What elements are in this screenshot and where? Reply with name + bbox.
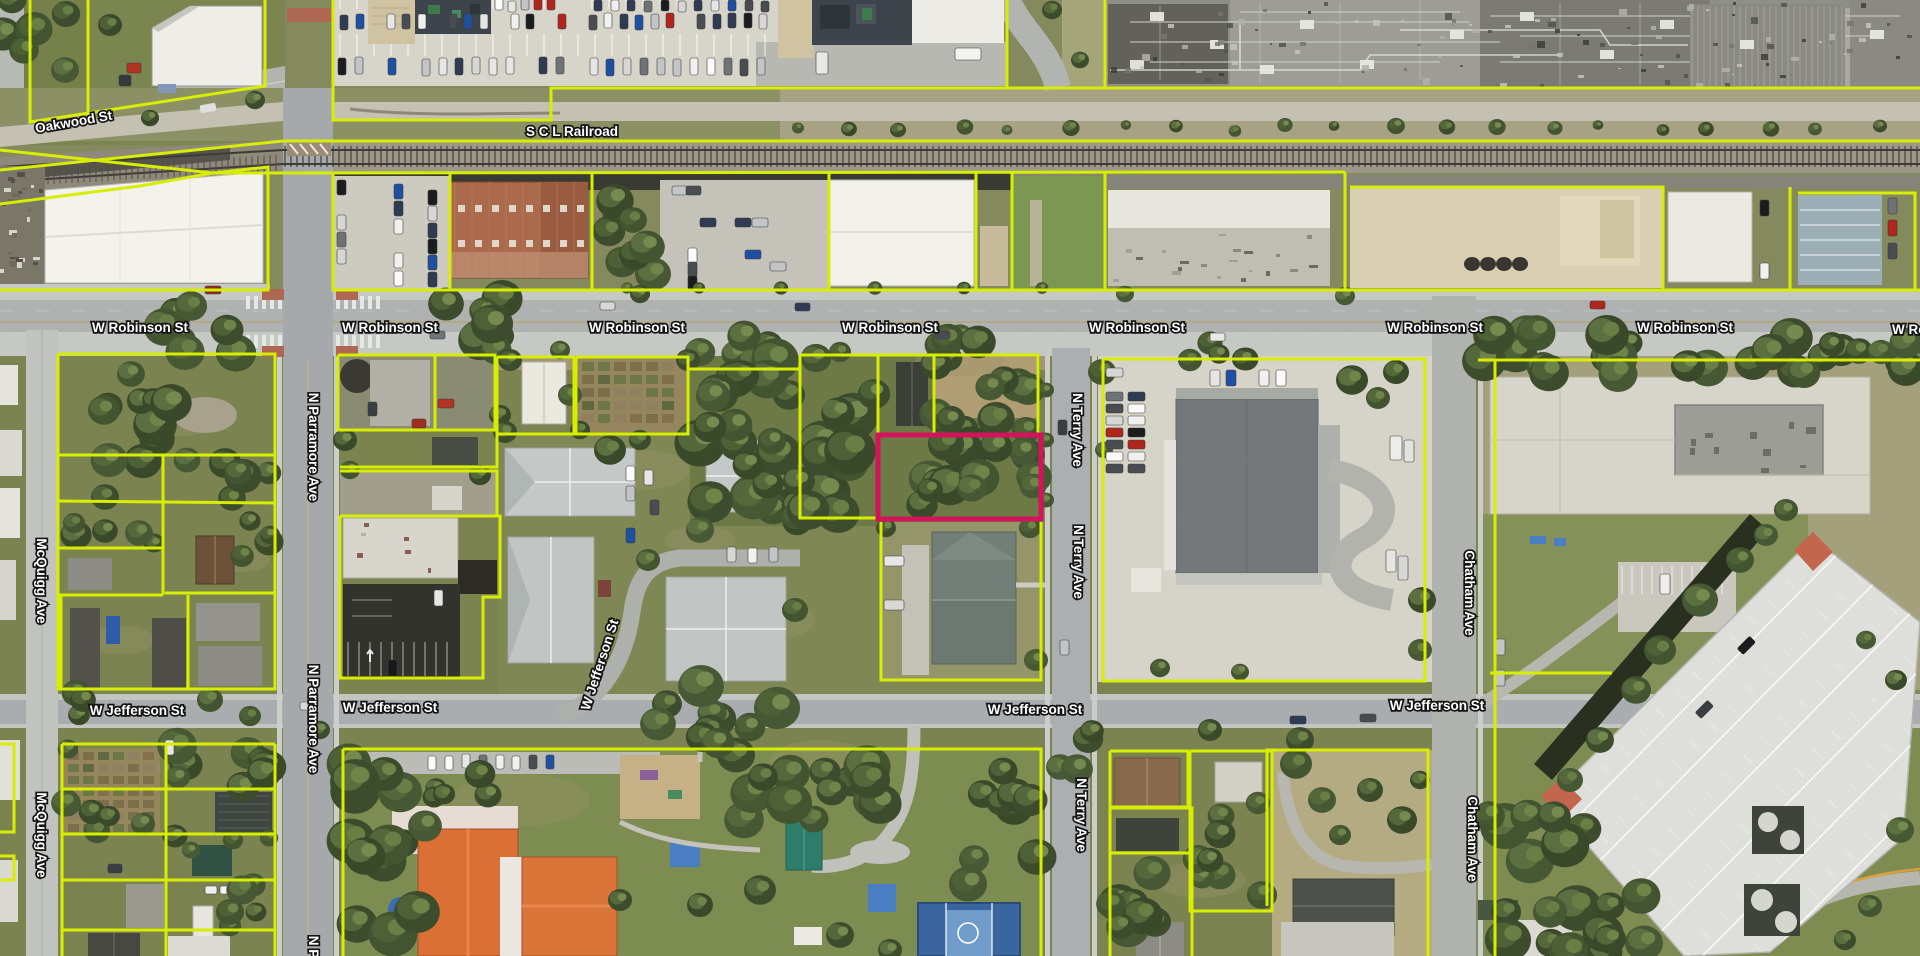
svg-text:W Jefferson St: W Jefferson St — [343, 700, 438, 715]
svg-text:Chatham Ave: Chatham Ave — [1465, 796, 1480, 882]
svg-text:W Jefferson St: W Jefferson St — [1390, 698, 1485, 713]
svg-text:N Terry Ave: N Terry Ave — [1071, 525, 1086, 599]
svg-text:W Robinson St: W Robinson St — [1892, 322, 1920, 337]
svg-text:S C L Railroad: S C L Railroad — [526, 124, 618, 139]
svg-text:W Robinson St: W Robinson St — [1387, 320, 1483, 335]
svg-text:W Jefferson St: W Jefferson St — [988, 702, 1083, 717]
svg-text:N Terry Ave: N Terry Ave — [1070, 393, 1085, 467]
svg-text:N Terry Ave: N Terry Ave — [1074, 778, 1089, 852]
svg-text:W Robinson St: W Robinson St — [589, 320, 685, 335]
svg-text:N Parramore Ave: N Parramore Ave — [306, 936, 321, 956]
svg-text:McQuigg Ave: McQuigg Ave — [34, 538, 49, 624]
svg-text:McQuigg Ave: McQuigg Ave — [34, 792, 49, 878]
svg-text:W Robinson St: W Robinson St — [1637, 320, 1733, 335]
svg-text:W Jefferson St: W Jefferson St — [90, 703, 185, 718]
svg-text:N Parramore Ave: N Parramore Ave — [306, 393, 321, 502]
svg-text:W Robinson St: W Robinson St — [92, 320, 188, 335]
svg-text:W Robinson St: W Robinson St — [342, 320, 438, 335]
svg-text:W Robinson St: W Robinson St — [842, 320, 938, 335]
svg-text:N Parramore Ave: N Parramore Ave — [306, 665, 321, 774]
svg-text:Chatham Ave: Chatham Ave — [1462, 550, 1477, 636]
svg-text:W Robinson St: W Robinson St — [1089, 320, 1185, 335]
